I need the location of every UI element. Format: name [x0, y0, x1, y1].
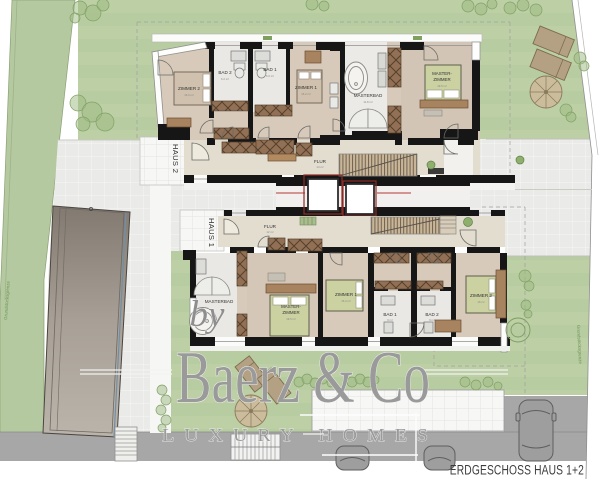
svg-text:ZIMMER 1: ZIMMER 1	[295, 85, 317, 90]
svg-text:HAUS 2: HAUS 2	[171, 144, 180, 173]
svg-text:6.2 m²: 6.2 m²	[221, 77, 229, 81]
svg-text:19.5 m²: 19.5 m²	[286, 317, 296, 321]
svg-text:FLUR: FLUR	[264, 224, 277, 229]
svg-text:MASTERBAD: MASTERBAD	[354, 93, 383, 98]
svg-text:15.2 m²: 15.2 m²	[341, 299, 351, 303]
svg-text:MASTER-: MASTER-	[432, 71, 452, 76]
svg-text:BAD 1: BAD 1	[263, 67, 277, 72]
svg-text:14 m²: 14 m²	[316, 165, 323, 169]
svg-text:BAD 2: BAD 2	[218, 70, 232, 75]
svg-text:6.0 m²: 6.0 m²	[266, 74, 274, 78]
svg-text:BAD 2: BAD 2	[425, 312, 439, 317]
svg-text:ZIMMER 2: ZIMMER 2	[470, 293, 492, 298]
svg-text:6 m²: 6 m²	[429, 318, 435, 322]
svg-text:16.0 m²: 16.0 m²	[184, 93, 194, 97]
svg-text:LUXURY HOMES: LUXURY HOMES	[162, 425, 438, 445]
svg-text:ZIMMER 1: ZIMMER 1	[335, 292, 357, 297]
svg-text:11.8 m²: 11.8 m²	[363, 100, 372, 104]
svg-text:ZIMMER: ZIMMER	[433, 77, 450, 82]
svg-text:15.2 m²: 15.2 m²	[301, 92, 311, 96]
svg-text:FLUR: FLUR	[314, 159, 327, 164]
svg-text:12 m²: 12 m²	[266, 230, 273, 234]
svg-text:by: by	[190, 294, 226, 335]
svg-text:BAD 1: BAD 1	[383, 312, 397, 317]
svg-text:16 m²: 16 m²	[477, 300, 484, 304]
svg-text:ERDGESCHOSS HAUS 1+2: ERDGESCHOSS HAUS 1+2	[450, 462, 584, 478]
svg-text:Baerz & Co: Baerz & Co	[176, 337, 430, 419]
svg-text:6 m²: 6 m²	[387, 318, 393, 322]
svg-text:MASTER-: MASTER-	[281, 304, 301, 309]
svg-text:19.5 m²: 19.5 m²	[437, 84, 447, 88]
svg-text:ZIMMER 2: ZIMMER 2	[178, 86, 200, 91]
svg-text:HAUS 1: HAUS 1	[207, 218, 216, 247]
svg-text:ZIMMER: ZIMMER	[282, 310, 299, 315]
